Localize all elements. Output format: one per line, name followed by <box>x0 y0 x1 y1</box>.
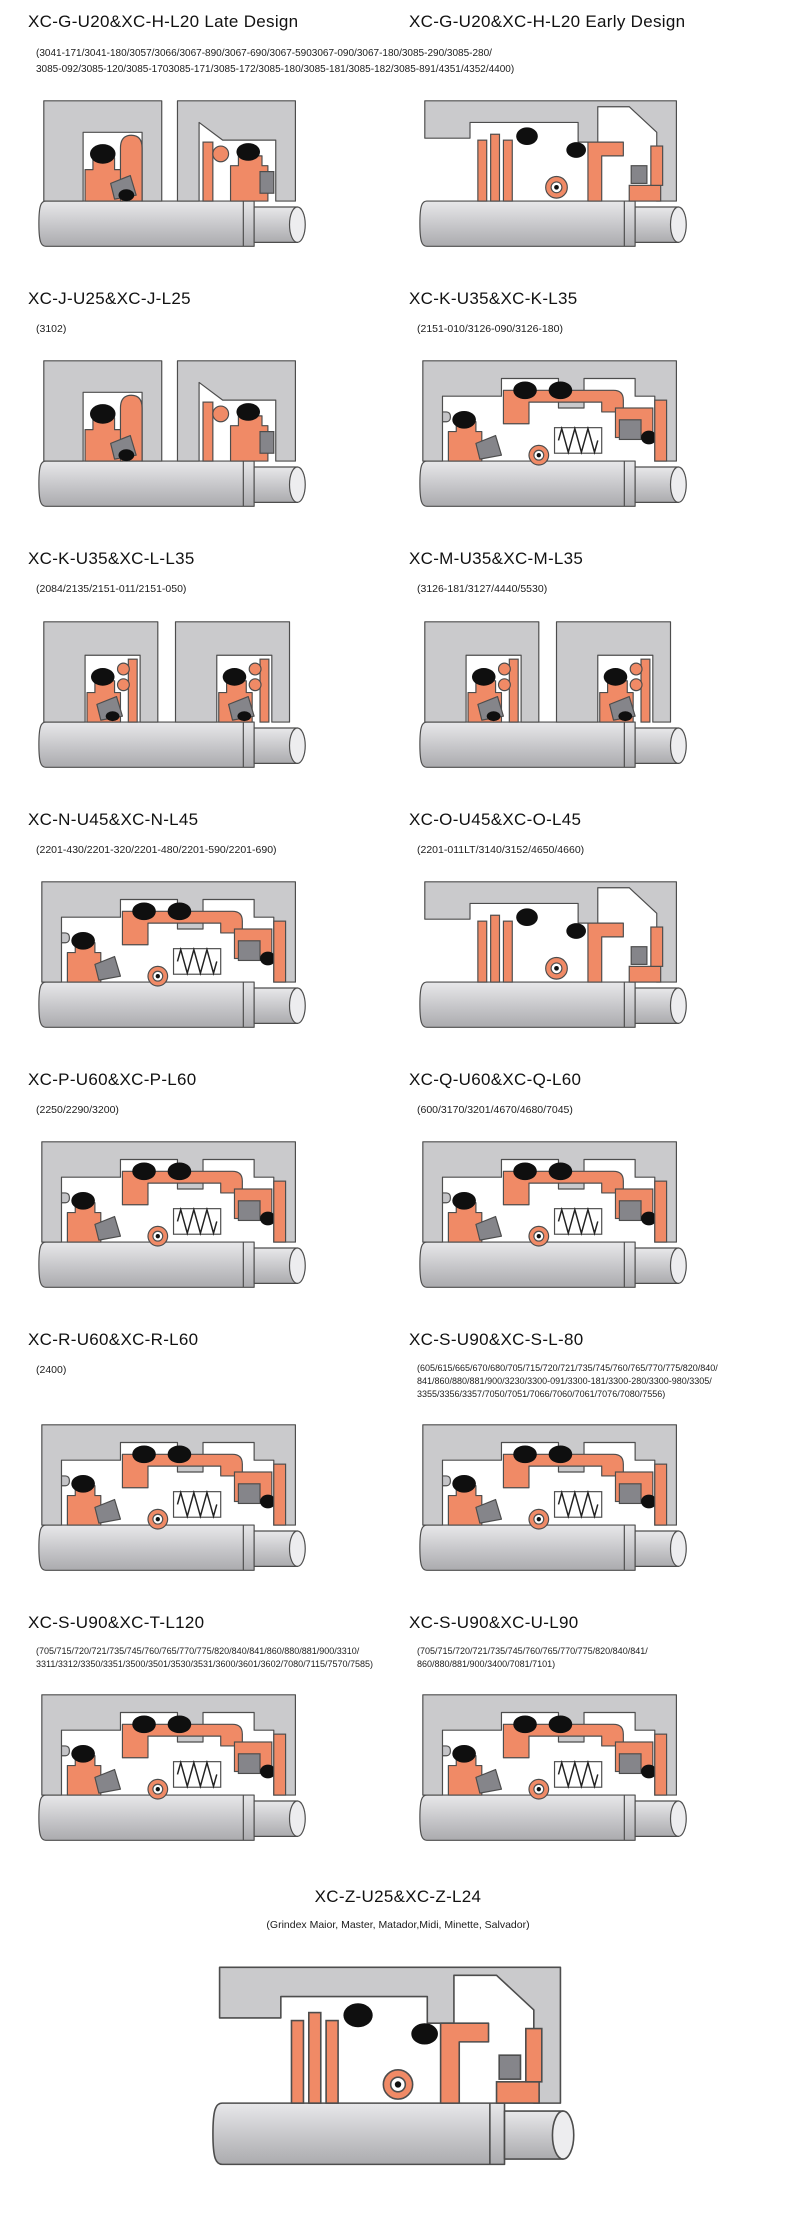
parts-list: (600/3170/3201/4670/4680/7045) <box>409 1102 768 1118</box>
seal-cross-section-diagram <box>409 858 704 1044</box>
section-title: XC-K-U35&XC-K-L35 <box>409 289 768 309</box>
seal-entry: XC-P-U60&XC-P-L60 (2250/2290/3200) <box>28 1070 387 1304</box>
section-title: XC-J-U25&XC-J-L25 <box>28 289 387 309</box>
catalog-row: XC-N-U45&XC-N-L45 (2201-430/2201-320/220… <box>28 810 768 1044</box>
seal-cross-section-diagram <box>409 598 704 784</box>
seal-cross-section-diagram <box>28 77 323 263</box>
section-title: XC-M-U35&XC-M-L35 <box>409 549 768 569</box>
seal-entry: XC-S-U90&XC-U-L90 (705/715/720/721/735/7… <box>409 1613 768 1857</box>
section-title: XC-N-U45&XC-N-L45 <box>28 810 387 830</box>
catalog-row: XC-J-U25&XC-J-L25 (3102) XC-K-U35&XC-K-L… <box>28 289 768 523</box>
section-title: XC-S-U90&XC-U-L90 <box>409 1613 768 1633</box>
parts-list: (2201-430/2201-320/2201-480/2201-590/220… <box>28 842 387 858</box>
catalog-row: XC-R-U60&XC-R-L60 (2400) XC-S-U90&XC-S-L… <box>28 1330 768 1587</box>
seal-cross-section-diagram <box>28 598 323 784</box>
seal-cross-section-diagram <box>409 1118 704 1304</box>
parts-list: (2084/2135/2151-011/2151-050) <box>28 581 387 597</box>
seal-cross-section-diagram <box>409 77 704 263</box>
seal-cross-section-diagram <box>409 1671 704 1857</box>
catalog-page: XC-G-U20&XC-H-L20 Late Design XC-G-U20&X… <box>0 0 796 2213</box>
section-title: XC-Q-U60&XC-Q-L60 <box>409 1070 768 1090</box>
section-title: XC-G-U20&XC-H-L20 Early Design <box>409 12 768 32</box>
catalog-row: XC-P-U60&XC-P-L60 (2250/2290/3200) XC-Q-… <box>28 1070 768 1304</box>
section-title: XC-R-U60&XC-R-L60 <box>28 1330 387 1350</box>
seal-cross-section-diagram <box>28 858 323 1044</box>
section-title: XC-O-U45&XC-O-L45 <box>409 810 768 830</box>
seal-cross-section-diagram <box>409 337 704 523</box>
parts-list: (3102) <box>28 321 387 337</box>
seal-cross-section-diagram <box>28 1401 323 1587</box>
section-title: XC-K-U35&XC-L-L35 <box>28 549 387 569</box>
parts-list: (605/615/665/670/680/705/715/720/721/735… <box>409 1362 768 1401</box>
parts-list: (2151-010/3126-090/3126-180) <box>409 321 768 337</box>
section-title: XC-P-U60&XC-P-L60 <box>28 1070 387 1090</box>
seal-cross-section-diagram <box>198 1940 598 2187</box>
parts-list: (2201-011LT/3140/3152/4650/4660) <box>409 842 768 858</box>
section-title: XC-S-U90&XC-S-L-80 <box>409 1330 768 1350</box>
catalog-row: XC-S-U90&XC-T-L120 (705/715/720/721/735/… <box>28 1613 768 1857</box>
catalog-row-bottom: XC-Z-U25&XC-Z-L24 (Grindex Maior, Master… <box>28 1887 768 2186</box>
section-title: XC-S-U90&XC-T-L120 <box>28 1613 387 1633</box>
catalog-row: XC-G-U20&XC-H-L20 Late Design XC-G-U20&X… <box>28 12 768 263</box>
seal-entry: XC-M-U35&XC-M-L35 (3126-181/3127/4440/55… <box>409 549 768 783</box>
parts-list: (2400) <box>28 1362 387 1378</box>
seal-entry: XC-K-U35&XC-L-L35 (2084/2135/2151-011/21… <box>28 549 387 783</box>
seal-entry: XC-Q-U60&XC-Q-L60 (600/3170/3201/4670/46… <box>409 1070 768 1304</box>
parts-list: (Grindex Maior, Master, Matador,Midi, Mi… <box>28 1917 768 1933</box>
seal-cross-section-diagram <box>28 1671 323 1857</box>
seal-entry: XC-S-U90&XC-T-L120 (705/715/720/721/735/… <box>28 1613 387 1857</box>
seal-entry: XC-S-U90&XC-S-L-80 (605/615/665/670/680/… <box>409 1330 768 1587</box>
seal-cross-section-diagram <box>28 337 323 523</box>
seal-entry: XC-N-U45&XC-N-L45 (2201-430/2201-320/220… <box>28 810 387 1044</box>
parts-list: (3126-181/3127/4440/5530) <box>409 581 768 597</box>
parts-list: (3041-171/3041-180/3057/3066/3067-890/30… <box>28 46 768 77</box>
seal-entry: XC-K-U35&XC-K-L35 (2151-010/3126-090/312… <box>409 289 768 523</box>
seal-cross-section-diagram <box>409 1401 704 1587</box>
parts-list: (705/715/720/721/735/745/760/765/770/775… <box>409 1645 768 1671</box>
seal-entry: XC-J-U25&XC-J-L25 (3102) <box>28 289 387 523</box>
seal-entry: XC-R-U60&XC-R-L60 (2400) <box>28 1330 387 1587</box>
seal-cross-section-diagram <box>28 1118 323 1304</box>
catalog-row: XC-K-U35&XC-L-L35 (2084/2135/2151-011/21… <box>28 549 768 783</box>
parts-list: (705/715/720/721/735/745/760/765/770/775… <box>28 1645 387 1671</box>
section-title: XC-G-U20&XC-H-L20 Late Design <box>28 12 387 32</box>
parts-list: (2250/2290/3200) <box>28 1102 387 1118</box>
seal-entry: XC-O-U45&XC-O-L45 (2201-011LT/3140/3152/… <box>409 810 768 1044</box>
section-title: XC-Z-U25&XC-Z-L24 <box>28 1887 768 1907</box>
